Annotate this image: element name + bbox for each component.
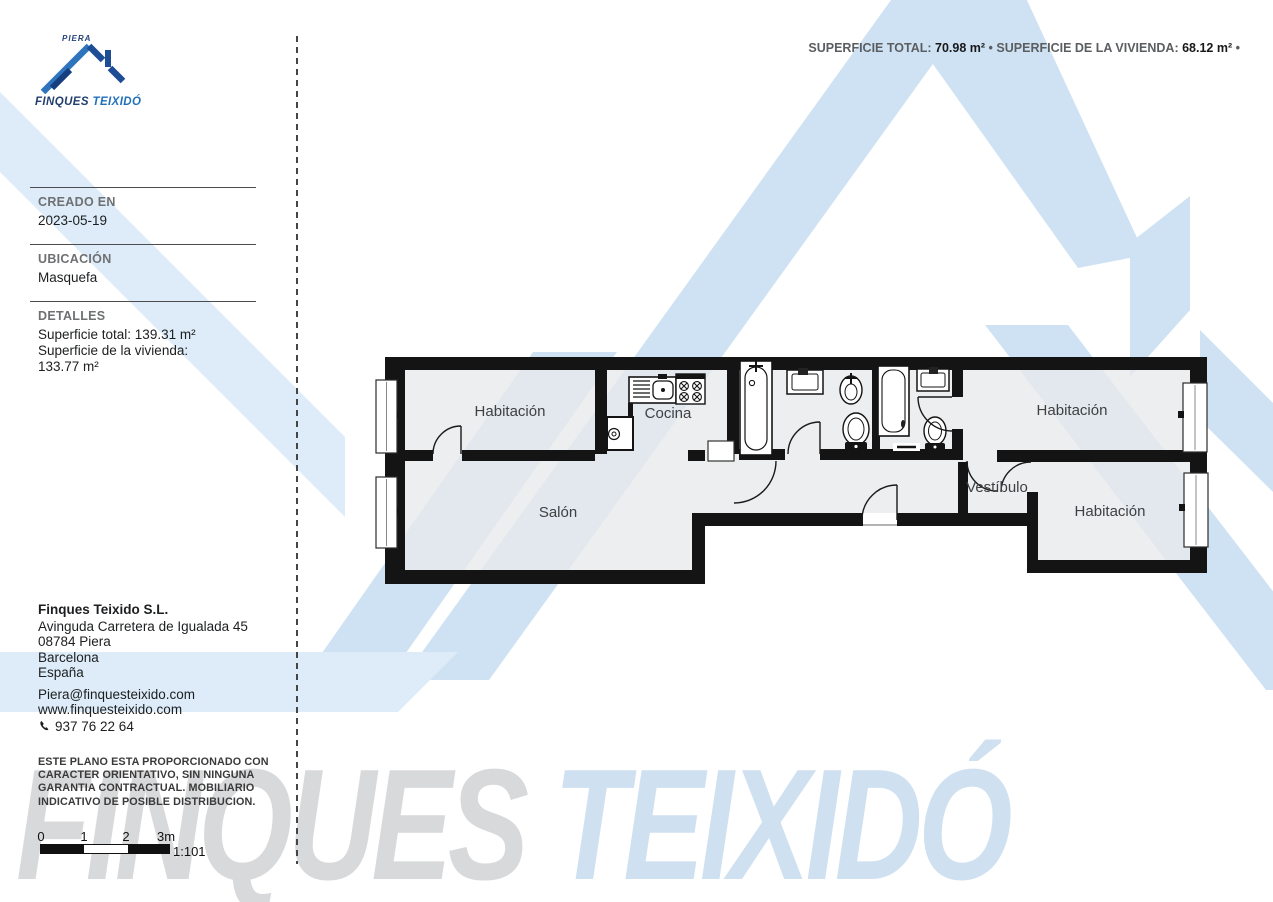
house-roof-icon [33, 42, 133, 94]
scale-tick-1: 1 [80, 829, 87, 844]
toilet-icon [843, 413, 869, 451]
details-dwelling-label: Superficie de la vivienda: [38, 343, 196, 359]
dashed-separator-line [296, 36, 298, 864]
disclaimer-line: INDICATIVO DE POSIBLE DISTRIBUCION. [38, 796, 269, 809]
room-label-habitacion-2: Habitación [1037, 402, 1108, 419]
bullet-separator: • [989, 41, 993, 55]
watermark-band-topleft [0, 92, 345, 517]
bathtub-icon [740, 359, 772, 455]
disclaimer-text: ESTE PLANO ESTA PROPORCIONADO CON CARACT… [38, 756, 269, 809]
bullet-trailing: • [1236, 41, 1240, 55]
location-value: Masquefa [38, 270, 112, 286]
sidebar-divider [30, 187, 256, 188]
surface-dwelling-value: 68.12 m² [1182, 41, 1232, 55]
section-details-heading: DETALLES [38, 309, 196, 323]
room-label-cocina: Cocina [645, 405, 692, 422]
details-dwelling-value: 133.77 m² [38, 359, 196, 375]
details-total-surface: Superficie total: 139.31 m² [38, 327, 196, 343]
surface-total-value: 70.98 m² [935, 41, 985, 55]
room-label-salon: Salón [539, 504, 577, 521]
floor-plan: Habitación Cocina Habitación Salón Vestí… [370, 348, 1220, 593]
surface-summary: SUPERFICIE TOTAL: 70.98 m² • SUPERFICIE … [808, 41, 1240, 55]
watermark-word-teixido: TEIXIDÓ [554, 737, 1008, 902]
company-logo: PIERA FINQUES TEIXIDÓ [33, 26, 213, 118]
sidebar-divider [30, 301, 256, 302]
company-email: Piera@finquesteixido.com [38, 687, 248, 703]
scale-segment-black [128, 845, 169, 853]
surface-total-label: SUPERFICIE TOTAL: [808, 41, 931, 55]
room-label-habitacion-3: Habitación [1075, 503, 1146, 520]
logo-brand-finques: FINQUES [35, 96, 89, 108]
phone-icon [38, 720, 50, 732]
section-location: UBICACIÓN Masquefa [38, 252, 112, 286]
created-date: 2023-05-19 [38, 213, 116, 229]
company-website: www.finquesteixido.com [38, 702, 248, 718]
sink-icon [917, 367, 949, 391]
section-location-heading: UBICACIÓN [38, 252, 112, 266]
company-address-province: Barcelona [38, 650, 248, 666]
vent-mark [893, 443, 920, 451]
shower-icon [878, 366, 909, 436]
surface-dwelling-label: SUPERFICIE DE LA VIVIENDA: [996, 41, 1178, 55]
company-name: Finques Teixido S.L. [38, 602, 248, 618]
company-address-zip: 08784 Piera [38, 634, 248, 650]
scale-segment-black [41, 845, 84, 853]
company-info: Finques Teixido S.L. Avinguda Carretera … [38, 602, 248, 734]
logo-brand-teixido: TEIXIDÓ [93, 96, 142, 108]
company-phone-row: 937 76 22 64 [38, 719, 248, 735]
scale-segment-white [84, 845, 128, 853]
company-phone-number: 937 76 22 64 [55, 719, 134, 735]
scale-tick-2: 2 [122, 829, 129, 844]
section-details: DETALLES Superficie total: 139.31 m² Sup… [38, 309, 196, 375]
section-created-heading: CREADO EN [38, 195, 116, 209]
kitchen-sink-icon [629, 374, 676, 403]
section-created: CREADO EN 2023-05-19 [38, 195, 116, 229]
scale-bar-segments [40, 844, 170, 854]
scale-tick-0: 0 [37, 829, 44, 844]
company-address-country: España [38, 665, 248, 681]
washing-machine-icon [607, 417, 633, 450]
stove-icon [676, 374, 705, 404]
plan-floors [397, 368, 1193, 572]
logo-brand-text: FINQUES TEIXIDÓ [35, 96, 141, 108]
scale-ratio: 1:101 [173, 844, 206, 859]
open-door-leaf [708, 441, 734, 461]
sink-icon [787, 368, 823, 394]
room-label-habitacion-1: Habitación [475, 403, 546, 420]
company-address-street: Avinguda Carretera de Igualada 45 [38, 619, 248, 635]
floorplan-page: { "header": { "logo": { "city": "PIERA",… [0, 0, 1273, 902]
sidebar-divider [30, 244, 256, 245]
scale-tick-3m: 3m [157, 829, 175, 844]
toilet-icon [924, 417, 946, 451]
disclaimer-line: CARACTER ORIENTATIVO, SIN NINGUNA [38, 769, 269, 782]
room-label-vestibulo: Vestíbulo [966, 479, 1028, 496]
disclaimer-line: GARANTIA CONTRACTUAL. MOBILIARIO [38, 782, 269, 795]
disclaimer-line: ESTE PLANO ESTA PROPORCIONADO CON [38, 756, 269, 769]
